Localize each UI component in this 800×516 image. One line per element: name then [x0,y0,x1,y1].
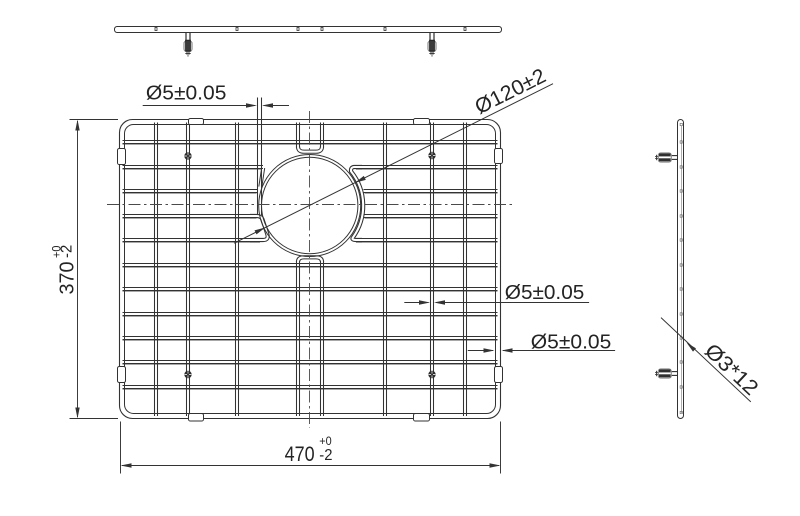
svg-text:470: 470 [285,443,315,466]
svg-text:Ø5±0.05: Ø5±0.05 [531,332,612,354]
svg-text:370: 370 [57,262,79,295]
svg-text:-2: -2 [59,245,76,258]
svg-text:-2: -2 [319,447,332,464]
svg-text:Ø5±0.05: Ø5±0.05 [505,282,585,304]
svg-text:Ø5±0.05: Ø5±0.05 [146,83,227,105]
svg-text:+0: +0 [319,436,331,448]
